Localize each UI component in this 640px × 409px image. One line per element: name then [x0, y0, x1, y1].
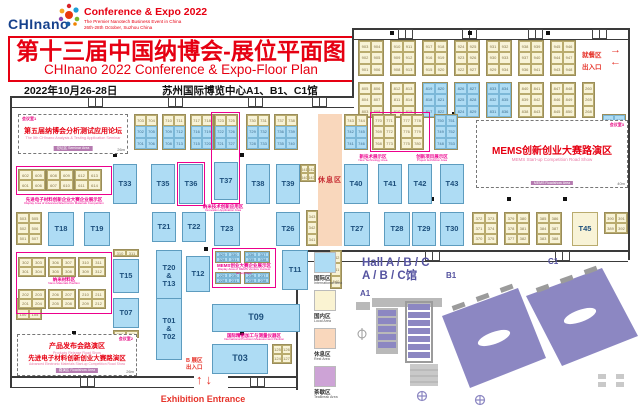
map-title-en: Hall A / B / C	[362, 257, 430, 269]
zone-label: MEMS创业大赛企业展示区Display Area of MEMS Ventur…	[212, 263, 276, 275]
booth-block: 931932930933929934	[486, 40, 512, 76]
booth-cell: 742	[345, 126, 356, 137]
page-title-cn: 第十三届中国纳博会-展位平面图	[10, 39, 352, 63]
meeting-room-line: MEMS创新创业大赛路演区	[492, 146, 612, 158]
zone-outline	[177, 162, 205, 206]
booth-cell: 846	[551, 94, 563, 105]
booth-cell: 820	[435, 83, 447, 94]
booth-cell: 506	[29, 223, 41, 233]
booth-cell: 260	[583, 83, 594, 94]
booth-cell: 922	[455, 64, 467, 75]
booth-cell: 826	[455, 83, 467, 94]
booth-cell: 705	[146, 126, 157, 137]
dining-text: 就餐区	[582, 49, 602, 59]
booth-block: 372373371374370375	[472, 212, 498, 245]
booth-block: 343342341	[306, 210, 318, 246]
booth-cell: 379	[505, 213, 517, 223]
hall-b-entrance-label: 出入口	[186, 363, 203, 371]
booth-T12: T12	[186, 256, 210, 292]
booth-cell: 918	[435, 41, 447, 52]
booth-cell: 923	[455, 52, 467, 63]
booth-cell: 805	[359, 83, 371, 94]
booth-cell: 811	[391, 94, 403, 105]
booth-cell: 738	[286, 115, 297, 126]
zone-label: 先进电子材料创新企业大赛企业展示区Display Area of Advance…	[2, 197, 126, 206]
meeting-room-dim: 40m	[617, 181, 625, 186]
zone-label-en: Project Exhibition Area	[400, 159, 464, 162]
booth-cell: 807	[371, 94, 383, 105]
booth-cell: 813	[403, 83, 415, 94]
booth-block: 730731729732728733	[246, 114, 270, 150]
booth-cell: 370	[473, 234, 485, 244]
booth-cell: 746	[356, 138, 367, 149]
booth-cell: 503	[17, 213, 29, 223]
booth-cell: 124	[273, 354, 282, 363]
booth-cell: 391	[616, 213, 627, 223]
booth-cell: 913	[403, 64, 415, 75]
booth-cell: 829	[467, 106, 479, 117]
exit-label: 出入口	[582, 61, 602, 71]
booth-T35: T35	[151, 164, 175, 204]
booth-block: 390391389392	[604, 212, 628, 234]
pillar	[563, 197, 567, 201]
zone-outline	[211, 112, 240, 204]
door-icon	[88, 97, 103, 107]
legend-swatch	[314, 252, 336, 273]
door-icon	[528, 29, 543, 39]
pillar	[240, 153, 244, 157]
booth-cell: 833	[487, 83, 499, 94]
booth-cell: 736	[275, 126, 286, 137]
booth-cell: 342	[307, 222, 317, 233]
booth-cell: 387	[549, 223, 561, 233]
legend-swatch	[314, 366, 336, 387]
booth-cell: 943	[551, 64, 563, 75]
booth-cell: 849	[563, 94, 575, 105]
wall	[628, 28, 630, 260]
booth-block: 826827825828824829	[454, 82, 480, 118]
booth-cell: 126	[282, 345, 291, 354]
booth-cell: 915	[423, 64, 435, 75]
zone-label: 国际精密加工与测量仪器区International Precision Meas…	[196, 333, 312, 342]
booth-block: 260265268	[582, 82, 595, 118]
booth-T42: T42	[408, 164, 432, 204]
booth-cell: 934	[499, 64, 511, 75]
wall	[10, 96, 12, 388]
pillar	[507, 197, 511, 201]
booth-cell: 908	[391, 64, 403, 75]
booth-cell: 640	[301, 173, 308, 181]
booth-cell: 917	[423, 41, 435, 52]
booth-cell: 753	[446, 138, 457, 149]
booth-cell: 812	[391, 83, 403, 94]
booth-block: 710711709712708713	[162, 114, 186, 150]
booth-cell: 382	[517, 234, 529, 244]
booth-cell: 827	[467, 83, 479, 94]
booth-cell: 847	[551, 83, 563, 94]
booth-cell: 127	[282, 354, 291, 363]
booth-cell: 375	[485, 234, 497, 244]
booth-cell: 733	[258, 138, 269, 149]
meeting-room-corner: 会议室1	[22, 116, 36, 122]
wall	[352, 28, 354, 96]
booth-cell: 931	[487, 41, 499, 52]
booth-cell: 926	[467, 52, 479, 63]
map-hall-b1-label: B1	[446, 271, 457, 280]
booth-cell: 751	[446, 115, 457, 126]
booth-cell: 936	[519, 64, 531, 75]
meeting-room: 会议室1第五届纳博会分析测试应用论坛The 5th CHInano Analys…	[18, 114, 128, 154]
zone-label: 纳米技术创新应用区Innovation Application Area	[168, 204, 278, 213]
expo-tagline: Conference & Expo 2022 The Premier Nanot…	[84, 6, 207, 31]
booth-cell: 916	[423, 52, 435, 63]
booth-cell: 850	[563, 106, 575, 117]
legend-swatch	[314, 328, 336, 349]
booth-cell: 828	[467, 94, 479, 105]
map-entrance-icons	[418, 392, 485, 405]
booth-cell: 735	[275, 138, 286, 149]
map-title-cn: A / B / C馆	[362, 268, 418, 282]
booth-block: 750751749752748753	[434, 114, 458, 150]
zone-label-en: Nano Materials Pavilion	[16, 282, 112, 285]
booth-cell: 904	[371, 41, 383, 52]
booth-cell: 925	[467, 41, 479, 52]
booth-cell: 911	[403, 41, 415, 52]
booth-cell: 834	[499, 83, 511, 94]
booth-cell: 946	[563, 41, 575, 52]
booth-cell: 752	[446, 126, 457, 137]
booth-cell: 501	[17, 234, 29, 244]
booth-cell: 947	[563, 52, 575, 63]
booth-block: 917918916919915920	[422, 40, 448, 76]
legend-item: 茶歇区TeaBreak Area	[314, 366, 348, 400]
booth-cell: 945	[551, 41, 563, 52]
booth-cell: 377	[505, 234, 517, 244]
booth-cell: 641	[301, 165, 308, 173]
booth-T27: T27	[344, 212, 370, 246]
booth-T18: T18	[48, 212, 74, 246]
booth-cell: 703	[135, 115, 146, 126]
legend-label-en: TeaBreak Area	[314, 396, 348, 400]
booth-cell: 739	[286, 126, 297, 137]
meeting-room-line: 第五届纳博会分析测试应用论坛	[24, 128, 122, 136]
meeting-room: 会议室2产品发布会路演区Products Release Road Show先进…	[17, 334, 137, 376]
booth-cell: 706	[146, 138, 157, 149]
booth-cell: 380	[517, 213, 529, 223]
booth-cell: 265	[583, 94, 594, 105]
rest-area: 休息区	[318, 114, 342, 246]
booth-block: 945946944947943948	[550, 40, 576, 76]
booth-block: 737738736739735740	[274, 114, 298, 150]
door-icon	[312, 97, 327, 107]
booth-cell: 832	[487, 94, 499, 105]
booth-cell: 311	[126, 250, 138, 256]
booth-cell: 717	[191, 115, 202, 126]
booth-cell: 838	[519, 106, 531, 117]
map-hall-a1-label: A1	[360, 289, 371, 298]
booth-block: 743744742745741746	[344, 114, 368, 150]
booth-cell: 929	[487, 64, 499, 75]
zone-label: 新技术展示区New Technology Area	[346, 154, 400, 163]
booth-block: 903904902905901906	[358, 40, 384, 76]
zone-label-en: International Precision Measurement Pavi…	[196, 338, 312, 341]
door-icon	[80, 377, 95, 387]
booth-cell: 839	[519, 94, 531, 105]
booth-cell: 310	[114, 250, 126, 256]
booth-cell: 701	[135, 138, 146, 149]
door-icon	[250, 377, 265, 387]
booth-cell: 502	[17, 223, 29, 233]
booth-cell: 384	[537, 223, 549, 233]
map-compass	[358, 328, 366, 340]
map-hall-c1-label: C1	[548, 257, 559, 266]
booth-cell: 944	[551, 52, 563, 63]
door-icon	[398, 29, 413, 39]
booth-cell: 924	[455, 41, 467, 52]
booth-cell: 712	[174, 126, 185, 137]
booth-block: 125126124127	[272, 344, 292, 364]
booth-cell: 825	[455, 94, 467, 105]
booth-cell: 843	[531, 106, 543, 117]
floor-plan-poster: CHInano Conference & Expo 2022 The Premi…	[0, 0, 640, 409]
booth-cell: 848	[563, 83, 575, 94]
expo-dates: 26th-28th October, Suzhou China	[84, 25, 207, 31]
booth-cell: 710	[163, 115, 174, 126]
booth-cell: 729	[247, 126, 258, 137]
legend-item: 国内区Local Area	[314, 290, 348, 324]
booth-block: 910911909912908913	[390, 40, 416, 76]
booth-cell: 750	[435, 115, 446, 126]
booth-cell: 507	[29, 234, 41, 244]
legend-label-en: Rest Area	[314, 358, 348, 362]
meeting-room-corner: 会议室2	[119, 336, 133, 342]
booth-cell: 940	[531, 52, 543, 63]
meeting-room-line: 产品发布会路演区	[49, 343, 105, 351]
booth-cell: 831	[487, 106, 499, 117]
booth-cell: 745	[356, 126, 367, 137]
meeting-room-tag: 路演区 Roadshow Area	[56, 368, 98, 373]
booth-cell: 715	[191, 138, 202, 149]
zone-label-en: Innovation Application Area	[168, 209, 278, 212]
booth-T30: T30	[440, 212, 464, 246]
booth-cell: 909	[391, 52, 403, 63]
booth-cell: 732	[258, 126, 269, 137]
booth-cell: 643	[308, 173, 315, 181]
door-icon	[248, 97, 263, 107]
door-icon	[168, 97, 183, 107]
pillar	[204, 247, 208, 251]
booth-cell: 842	[531, 94, 543, 105]
legend-label-en: International Area	[314, 282, 348, 286]
booth-cell: 912	[403, 52, 415, 63]
booth-cell: 941	[531, 64, 543, 75]
booth-cell: 919	[435, 52, 447, 63]
booth-cell: 821	[435, 94, 447, 105]
booth-block: 840841839842838843	[518, 82, 544, 118]
booth-block: 641642640643	[300, 164, 316, 182]
booth-cell: 374	[485, 223, 497, 233]
booth-cell: 906	[371, 64, 383, 75]
booth-cell: 392	[616, 223, 627, 233]
booth-cell: 743	[345, 115, 356, 126]
booth-cell: 388	[549, 234, 561, 244]
dining-arrow-icon: →	[610, 44, 621, 56]
booth-cell: 938	[519, 41, 531, 52]
booth-cell: 903	[359, 41, 371, 52]
booth-block: 833834832835831836	[486, 82, 512, 118]
booth-cell: 840	[519, 83, 531, 94]
expo-title: Conference & Expo 2022	[84, 6, 207, 19]
legend-label-en: Local Area	[314, 320, 348, 324]
meeting-room-corner: 会议室3	[610, 122, 624, 128]
wall	[354, 28, 630, 40]
pillar	[546, 31, 550, 35]
booth-cell: 704	[146, 115, 157, 126]
booth-cell: 740	[286, 138, 297, 149]
booth-cell: 741	[345, 138, 356, 149]
booth-block: 503505502506501507	[16, 212, 42, 245]
booth-cell: 709	[163, 126, 174, 137]
booth-block: 379380378381377382	[504, 212, 530, 245]
booth-cell: 642	[308, 165, 315, 173]
booth-block: 385386384387383388	[536, 212, 562, 245]
booth-cell: 728	[247, 138, 258, 149]
booth-cell: 937	[519, 52, 531, 63]
booth-cell: 819	[423, 83, 435, 94]
booth-T39: T39	[276, 164, 300, 204]
map-a1-wing	[356, 302, 370, 310]
booth-cell: 268	[583, 106, 594, 117]
meeting-room-tag: MEMS Roadshow Area	[531, 181, 573, 185]
booth-cell: 125	[273, 345, 282, 354]
booth-cell: 927	[467, 64, 479, 75]
entrance-arrows-icon: ↑↓	[196, 372, 215, 387]
booth-T28: T28	[384, 212, 410, 246]
booth-cell: 389	[605, 223, 616, 233]
booth-cell: 383	[537, 234, 549, 244]
exhibition-entrance-label: Exhibition Entrance	[118, 394, 288, 404]
booth-cell: 845	[551, 106, 563, 117]
booth-cell: 390	[605, 213, 616, 223]
booth-T23: T23	[214, 212, 240, 246]
booth-cell: 804	[359, 94, 371, 105]
booth-cell: 744	[356, 115, 367, 126]
booth-block: 938939937940936941	[518, 40, 544, 76]
booth-cell: 730	[247, 115, 258, 126]
booth-T40: T40	[344, 164, 368, 204]
legend-swatch	[314, 290, 336, 311]
dining-area-label: 就餐区	[582, 49, 602, 59]
booth-cell: 385	[537, 213, 549, 223]
page-title-en: CHInano 2022 Conference & Expo-Floor Pla…	[10, 63, 352, 77]
booth-T22: T22	[182, 212, 206, 242]
booth-block: 847848846849845850	[550, 82, 576, 118]
booth-cell: 341	[307, 234, 317, 245]
booth-cell: 814	[403, 94, 415, 105]
booth-cell: 932	[499, 41, 511, 52]
map-ramp	[410, 364, 438, 386]
venue-overview-map: Hall A / B / C A / B / C馆 A1 B1 C1	[352, 246, 640, 408]
booth-cell: 708	[163, 138, 174, 149]
legend-item: 国际区International Area	[314, 252, 348, 286]
booth-cell: 371	[473, 223, 485, 233]
booth-cell: 386	[549, 213, 561, 223]
booth-T38: T38	[246, 164, 270, 204]
booth-cell: 702	[135, 126, 146, 137]
booth-cell: 948	[563, 64, 575, 75]
booth-T15: T15	[113, 259, 139, 293]
booth-cell: 930	[487, 52, 499, 63]
booth-block: 924925923926922927	[454, 40, 480, 76]
booth-cell: 372	[473, 213, 485, 223]
booth-cell: 905	[371, 52, 383, 63]
meeting-room-dim: 26m	[126, 369, 134, 374]
booth-cell: 343	[307, 211, 317, 222]
door-icon	[592, 29, 607, 39]
booth-cell: 749	[435, 126, 446, 137]
map-mini-legend	[598, 374, 624, 387]
booth-cell: 939	[531, 41, 543, 52]
booth-cell: 711	[174, 115, 185, 126]
booth-T19: T19	[84, 212, 110, 246]
booth-cell: 748	[435, 138, 446, 149]
pillar	[390, 31, 394, 35]
meeting-room-dim: 26m	[117, 147, 125, 152]
booth-cell: 378	[505, 223, 517, 233]
booth-cell: 731	[258, 115, 269, 126]
booth-cell: 713	[174, 138, 185, 149]
zone-label-en: New Technology Area	[346, 159, 400, 162]
booth-block: 703704702705701706	[134, 114, 158, 150]
booth-cell: 933	[499, 52, 511, 63]
booth-block: 310311	[113, 249, 139, 257]
booth-T45: T45	[572, 212, 598, 246]
booth-T11: T11	[282, 250, 308, 290]
logo-globe-icon	[56, 2, 82, 30]
zone-outline	[370, 112, 430, 152]
booth-cell: 901	[359, 64, 371, 75]
booth-T43: T43	[440, 164, 464, 204]
booth-T26: T26	[276, 212, 300, 246]
booth-T09: T09	[212, 304, 300, 332]
booth-cell: 737	[275, 115, 286, 126]
booth-T03: T03	[212, 344, 268, 374]
booth-T41: T41	[378, 164, 402, 204]
booth-cell: 902	[359, 52, 371, 63]
meeting-room-line: MEMS Start-up Competition Road Show	[512, 157, 593, 162]
booth-cell: 841	[531, 83, 543, 94]
booth-cell: 806	[371, 83, 383, 94]
booth-cell: 381	[517, 223, 529, 233]
booth-cell: 505	[29, 213, 41, 223]
booth-cell: 716	[191, 126, 202, 137]
booth-T29: T29	[412, 212, 436, 246]
meeting-room: 会议室3MEMS创新创业大赛路演区MEMS Start-up Competiti…	[476, 120, 628, 188]
title-box: 第十三届中国纳博会-展位平面图 CHInano 2022 Conference …	[8, 36, 354, 82]
booth-T01T02: T01 & T02	[156, 298, 182, 360]
meeting-room-line: The 5th CHInano Analysis & Testing Appli…	[25, 136, 120, 140]
zone-label: 纳米材料区Nano Materials Pavilion	[16, 277, 112, 286]
zone-label: 创新项目展示区Project Exhibition Area	[400, 154, 464, 163]
legend-item: 休息区Rest Area	[314, 328, 348, 362]
booth-cell: 910	[391, 41, 403, 52]
meeting-room-tag: 论坛区 Seminar Area	[54, 146, 93, 151]
booth-cell: 836	[499, 106, 511, 117]
booth-cell: 373	[485, 213, 497, 223]
meeting-room-line: Advanced Electronic Materials Start-up C…	[29, 363, 125, 367]
booth-cell: 835	[499, 94, 511, 105]
booth-T20T13: T20 & T13	[156, 250, 182, 302]
